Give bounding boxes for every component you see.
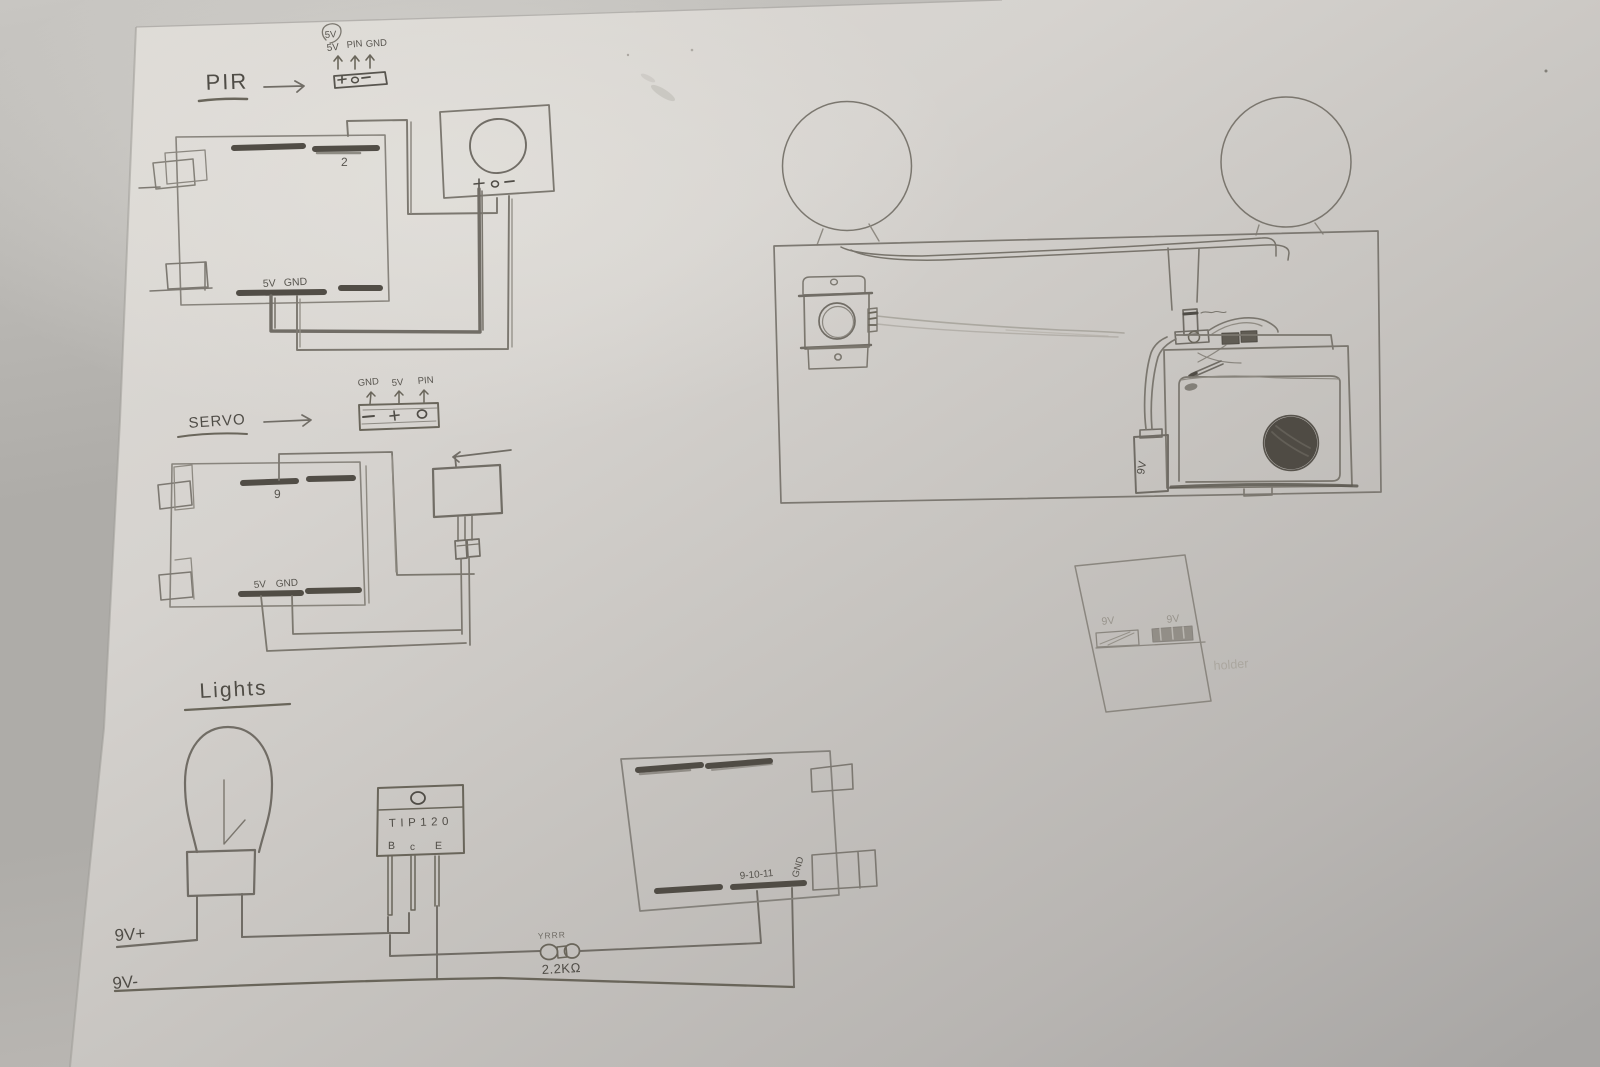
svg-text:GND: GND xyxy=(365,38,387,50)
svg-text:9V: 9V xyxy=(1166,613,1180,626)
svg-text:9: 9 xyxy=(274,487,281,501)
svg-text:2.2KΩ: 2.2KΩ xyxy=(541,960,581,977)
svg-text:5V: 5V xyxy=(326,42,339,54)
svg-text:5V: 5V xyxy=(263,277,276,290)
svg-text:5V: 5V xyxy=(391,377,404,389)
svg-text:9V+: 9V+ xyxy=(114,924,146,945)
svg-text:2: 2 xyxy=(341,155,348,169)
svg-text:9V: 9V xyxy=(1101,615,1115,628)
svg-text:holder: holder xyxy=(1213,657,1249,673)
svg-text:YRRR: YRRR xyxy=(538,930,567,941)
svg-text:TIP120: TIP120 xyxy=(389,816,453,830)
svg-text:PIN: PIN xyxy=(346,38,363,51)
svg-text:5V: 5V xyxy=(253,579,266,591)
svg-text:9V-: 9V- xyxy=(112,972,139,993)
svg-text:E: E xyxy=(435,840,442,852)
svg-text:c: c xyxy=(410,842,415,853)
svg-text:5V: 5V xyxy=(324,29,337,41)
svg-text:GND: GND xyxy=(284,276,308,289)
svg-text:GND: GND xyxy=(357,376,379,389)
svg-text:GND: GND xyxy=(275,577,298,590)
svg-text:B: B xyxy=(388,840,395,852)
svg-text:PIN: PIN xyxy=(417,375,434,387)
svg-text:PIR: PIR xyxy=(205,68,249,94)
svg-text:9V: 9V xyxy=(1135,460,1149,476)
svg-text:Lights: Lights xyxy=(199,676,268,703)
